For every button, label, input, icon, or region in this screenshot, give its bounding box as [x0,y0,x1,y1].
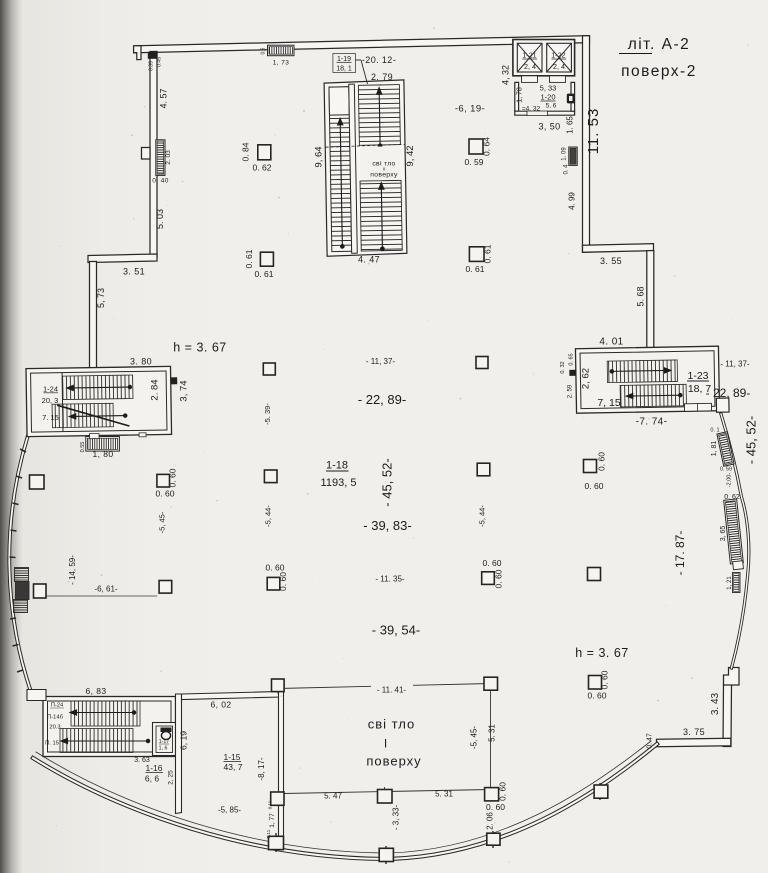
svg-text:- 11. 41-: - 11. 41- [377,686,407,695]
svg-text:- 14, 59-: - 14, 59- [68,555,77,585]
svg-text:0. 60: 0. 60 [483,558,502,568]
svg-text:- 3, 33-: - 3, 33- [392,804,401,830]
svg-text:1-20: 1-20 [540,93,555,102]
svg-text:4. 47: 4. 47 [358,255,380,265]
svg-text:0. 62: 0. 62 [253,163,272,173]
svg-text:1-22: 1-22 [551,51,565,60]
svg-text:3, 50: 3, 50 [538,122,560,132]
svg-text:3, 74: 3, 74 [179,380,190,401]
svg-text:-5, 85-: -5, 85- [218,806,241,815]
svg-text:4. 99: 4. 99 [568,192,577,210]
svg-text:3. 75: 3. 75 [683,727,705,737]
svg-text:1. 65: 1. 65 [566,116,575,134]
svg-text:20.3: 20.3 [49,725,60,731]
svg-text:6, 83: 6, 83 [86,686,107,696]
svg-text:1193, 5: 1193, 5 [321,477,357,489]
svg-text:-5. 39-: -5. 39- [263,403,272,425]
svg-text:- 22, 89-: - 22, 89- [358,392,406,407]
svg-text:1-21: 1-21 [522,51,536,60]
svg-text:0. 60: 0. 60 [585,481,604,491]
svg-text:2, 25: 2, 25 [168,770,175,785]
svg-text:5, 6: 5, 6 [546,103,557,110]
svg-text:1, 73: 1, 73 [273,60,289,67]
svg-text:7, 15: 7, 15 [597,397,621,409]
svg-text:6, 02: 6, 02 [211,700,232,710]
svg-text:-6, 19-: -6, 19- [455,104,485,115]
svg-text:0. 32: 0. 32 [560,361,566,373]
svg-text:сві тло: сві тло [372,160,395,168]
svg-text:h = 3. 67: h = 3. 67 [575,646,629,660]
svg-text:П-14б: П-14б [47,715,64,721]
svg-text:сві тло: сві тло [368,717,416,732]
svg-text:4. 01: 4. 01 [599,337,623,348]
svg-text:- 39, 54-: - 39, 54- [372,623,420,638]
svg-text:3. 80: 3. 80 [130,357,152,367]
svg-text:2. 59: 2. 59 [568,384,574,398]
svg-text:-6, 61-: -6, 61- [94,585,117,594]
svg-text:0.39: 0.39 [149,61,155,71]
svg-text:5. 31: 5. 31 [435,790,453,799]
svg-text:1, 21: 1, 21 [727,576,733,590]
svg-text:-5, 45-: -5, 45- [158,511,167,533]
svg-text:П-24: П-24 [51,703,64,709]
svg-text:3. 51: 3. 51 [123,267,145,277]
svg-text:1-16: 1-16 [145,763,162,773]
svg-text:0. 61: 0. 61 [244,249,254,268]
svg-text:3, 65: 3, 65 [720,526,727,542]
svg-text:0. 62: 0. 62 [724,494,740,501]
svg-text:-5, 45-: -5, 45- [470,726,479,749]
svg-text:0.55: 0.55 [80,442,86,453]
svg-text:6, 19: 6, 19 [179,731,189,750]
svg-text:43, 7: 43, 7 [224,762,243,772]
svg-text:0.45: 0.45 [157,57,163,67]
svg-text:І: І [384,737,388,751]
svg-text:2, 4: 2, 4 [524,62,536,71]
svg-text:-5, 44-: -5, 44- [264,505,273,527]
svg-text:0. 60: 0. 60 [588,691,607,701]
svg-text:4. 57: 4. 57 [159,88,169,108]
svg-text:5. 03: 5. 03 [155,209,165,229]
svg-text:2. 03: 2. 03 [165,150,172,165]
svg-text:0. 60: 0. 60 [168,468,178,487]
svg-text:11. 53: 11. 53 [585,108,602,155]
svg-text:-2.00-: -2.00- [727,473,733,488]
svg-text:9, 42: 9, 42 [405,145,416,166]
svg-text:9, 64: 9, 64 [314,146,325,167]
svg-text:0. 60: 0. 60 [494,569,504,588]
svg-text:0. 40: 0. 40 [152,178,168,185]
svg-text:0.11: 0.11 [268,800,273,809]
svg-text:поверху: поверху [366,754,421,769]
svg-text:-20. 12-: -20. 12- [362,55,396,65]
svg-text:2. 79: 2. 79 [371,72,393,82]
svg-text:- 45, 52-: - 45, 52- [380,458,395,506]
svg-text:- 11, 37-: - 11, 37- [720,360,750,369]
svg-text:h = 3. 67: h = 3. 67 [173,341,227,355]
svg-text:2, 4: 2, 4 [553,62,565,71]
svg-text:2, 62: 2, 62 [581,368,592,389]
svg-text:0. 60: 0. 60 [156,489,175,499]
svg-text:0. 47: 0. 47 [647,733,654,749]
svg-text:0. 4: 0. 4 [564,164,570,175]
svg-text:0. 60: 0. 60 [597,452,607,471]
svg-text:0. 59: 0. 59 [465,157,484,167]
svg-text:0. 65: 0. 65 [569,353,575,365]
svg-text:1, 78: 1, 78 [517,87,524,103]
svg-text:5. 47: 5. 47 [324,792,342,801]
svg-text:0. 60: 0. 60 [278,572,288,591]
svg-text:0. 61: 0. 61 [483,244,493,263]
svg-text:літ. А-2: літ. А-2 [628,36,691,53]
svg-text:- 22, 89-: - 22, 89- [706,386,751,400]
svg-text:1-24: 1-24 [43,384,58,393]
svg-text:-5, 44-: -5, 44- [478,505,487,527]
svg-text:0. 59: 0. 59 [720,467,732,473]
svg-text:3. 55: 3. 55 [600,256,622,266]
svg-text:поверху: поверху [370,172,398,179]
svg-text:4, 32: 4, 32 [501,65,511,85]
svg-text:0. 64: 0. 64 [482,137,492,156]
svg-text:0. 60: 0. 60 [498,782,508,801]
svg-text:1-23: 1-23 [687,370,708,382]
svg-text:18, 7: 18, 7 [688,383,712,395]
svg-text:0.11: 0.11 [266,829,271,838]
svg-text:- 39, 83-: - 39, 83- [363,518,411,533]
svg-text:- 45, 52-: - 45, 52- [744,416,759,464]
svg-text:7. 15: 7. 15 [42,413,59,422]
svg-text:2. 84: 2. 84 [150,379,161,400]
svg-text:20, 3: 20, 3 [42,396,59,405]
svg-text:0. 60: 0. 60 [600,670,610,689]
svg-text:1-18: 1-18 [326,460,348,472]
svg-text:1. 09: 1. 09 [561,147,567,161]
svg-text:1-15: 1-15 [223,752,240,762]
svg-text:0. 60: 0. 60 [486,802,505,812]
svg-text:- 11. 35-: - 11. 35- [375,575,405,584]
svg-text:1, 81: 1, 81 [711,441,718,457]
svg-text:0. 61: 0. 61 [255,269,274,279]
svg-text:0.6: 0.6 [261,47,267,54]
svg-text:П. 15: П. 15 [45,741,59,747]
svg-text:5. 68: 5. 68 [636,286,646,306]
svg-text:- 17. 87-: - 17. 87- [673,531,687,576]
svg-text:- 11, 37-: - 11, 37- [366,357,396,366]
svg-text:1, 6: 1, 6 [159,746,168,752]
svg-text:=4. 32: =4. 32 [522,106,541,113]
svg-text:3. 43: 3. 43 [710,692,721,715]
svg-text:1, 80: 1, 80 [93,449,114,459]
svg-text:поверх-2: поверх-2 [621,63,697,80]
svg-text:0. 61: 0. 61 [466,264,485,274]
svg-text:5. 31: 5. 31 [488,724,497,742]
svg-text:0. 60: 0. 60 [266,563,285,573]
svg-text:18, 1: 18, 1 [336,66,352,73]
svg-text:1, 77: 1, 77 [269,813,276,828]
svg-text:0. 1: 0. 1 [710,428,719,434]
svg-text:-8, 17-: -8, 17- [257,757,266,780]
svg-text:-7. 74-: -7. 74- [636,417,668,428]
svg-text:5, 33: 5, 33 [540,84,557,93]
svg-text:2. 06: 2. 06 [486,812,495,830]
svg-text:6, 6: 6, 6 [145,774,159,784]
svg-text:5, 73: 5, 73 [96,288,106,308]
svg-text:0. 84: 0. 84 [241,142,251,161]
